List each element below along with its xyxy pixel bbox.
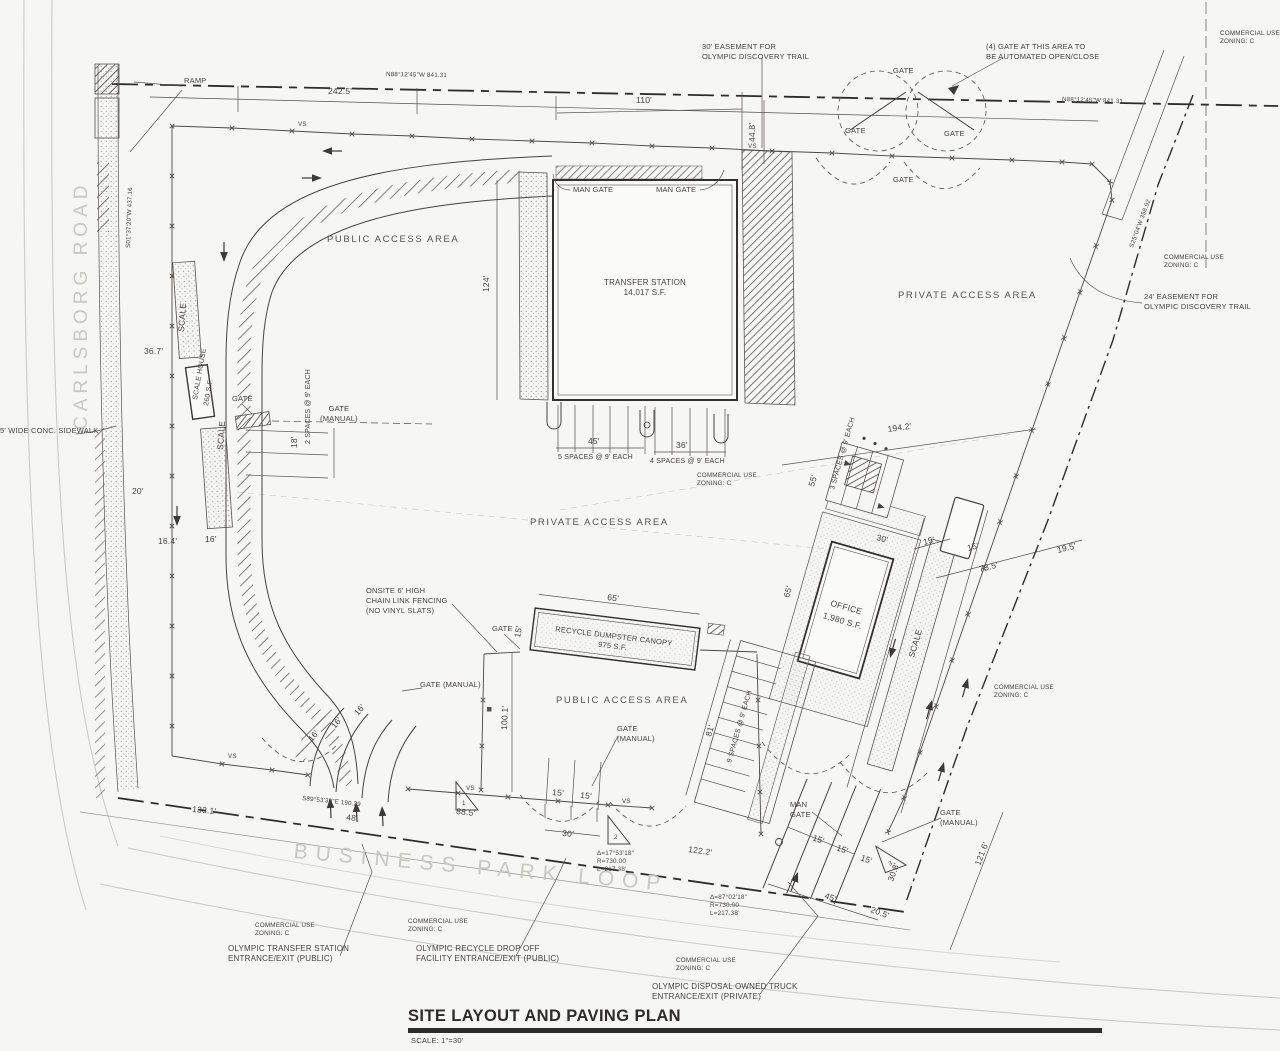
- parking-4-spaces: 4 SPACES @ 9' EACH: [650, 458, 725, 465]
- dim-122-2: 122.2': [688, 844, 713, 857]
- gap-ticks: [545, 804, 597, 822]
- note-arrow-line: [952, 58, 1003, 86]
- dim-line-45: [768, 884, 878, 920]
- property-boundary: [80, 2, 1278, 930]
- dim-20: 20': [132, 486, 144, 496]
- arrow-south: [173, 506, 181, 526]
- fence-vs-mark: VS: [622, 798, 631, 805]
- dim-36: 36': [676, 440, 688, 450]
- south-road-line: [80, 812, 910, 930]
- fence-vs-mark: VS: [298, 121, 307, 128]
- dim-73-5: 73.5': [978, 560, 999, 574]
- scale-label: SCALE: [215, 421, 227, 451]
- dim-15: 15': [835, 842, 850, 855]
- dim-44-8: 44.8': [747, 123, 757, 142]
- fence-enclosure-top-left: [484, 652, 520, 654]
- dim-133-1: 133.1': [192, 804, 217, 816]
- arrow-ne: [935, 761, 948, 782]
- arrow-east: [302, 174, 322, 182]
- dim-124: 124': [481, 275, 491, 292]
- public-entrance: [262, 708, 630, 844]
- enclosure-post: [487, 707, 492, 712]
- west-roadway: [226, 156, 552, 788]
- fence-vs-mark: VS: [466, 785, 475, 792]
- dim-15: 15': [859, 852, 874, 865]
- south-property-line: [118, 798, 905, 912]
- fence-enclosure-left: [481, 654, 484, 790]
- dim-55: 55': [806, 473, 819, 487]
- scale-label: SCALE: [176, 303, 188, 333]
- easement-right-leader: [1070, 258, 1142, 303]
- arrow-south: [220, 242, 228, 262]
- curve-number-2: 2: [614, 834, 618, 841]
- gate-swing-arc: [762, 742, 928, 793]
- fence-line-south: [408, 789, 652, 808]
- canopy-structure: [530, 608, 700, 670]
- dim-19-5: 19.5': [1056, 541, 1077, 555]
- carlsborg-sidewalk: [95, 64, 138, 798]
- trail-strip: [1102, 50, 1184, 220]
- north-dock-band: [556, 166, 702, 179]
- curve-number-1: 1: [462, 800, 466, 807]
- dim-16: 16': [205, 534, 217, 544]
- arrow-ne: [959, 677, 972, 698]
- dim-121-6: 121.6': [973, 840, 991, 866]
- fence-line-south-west: [172, 756, 308, 775]
- bearing-east: S25°04'W 358.92: [1128, 198, 1152, 249]
- fence-vs-mark: VS: [748, 143, 757, 150]
- fence-vs-mark: VS: [228, 753, 237, 760]
- dim-48: 48': [346, 812, 359, 823]
- dim-242-5: 242.5': [328, 86, 352, 96]
- dim-45: 45': [588, 436, 600, 446]
- ramp-leader: [130, 82, 182, 152]
- curve-triangle-2: [608, 816, 630, 844]
- post-dot: [873, 442, 877, 446]
- east-wall-strip: [742, 150, 795, 405]
- dim-88-5: 88.5': [456, 806, 476, 818]
- bearing-west: S01°37'20"W 437.16: [125, 187, 134, 248]
- gate-dashed-line: [272, 421, 432, 424]
- note-arrowhead: [948, 85, 959, 95]
- site-plan-drawing: OFFICE 1,980 S.F.: [0, 0, 1280, 1051]
- gate-leader: [242, 404, 520, 649]
- dim-16-4: 16.4': [158, 536, 177, 546]
- dim-15: 15': [580, 790, 593, 801]
- employee-parking-lines: [246, 430, 328, 478]
- fencing-leader: [452, 604, 497, 652]
- truck-entrance: 3: [762, 742, 1003, 950]
- dim-81: 81': [703, 723, 716, 737]
- canopy-hatch-block: [707, 623, 724, 635]
- dim-65: 65': [607, 592, 620, 603]
- carlsborg-road-edge: [24, 0, 86, 910]
- east-property-line: [905, 95, 1193, 905]
- sight-line: [237, 434, 1012, 549]
- business-park-loop-edge: [128, 848, 1280, 998]
- dim-line-121-6: [950, 812, 1003, 950]
- dim-16: 16': [352, 702, 367, 718]
- dock-space-lines: [558, 405, 725, 457]
- dim-65: 65': [781, 584, 794, 598]
- dim-100-1: 100.1': [499, 705, 510, 730]
- dim-15: 15': [811, 832, 826, 845]
- dim-15: 15': [512, 625, 524, 638]
- transfer-station-building: [553, 180, 737, 400]
- dock-dim-lines: [556, 448, 726, 452]
- recycle-canopy: [530, 594, 725, 673]
- fence-line-top: [172, 126, 1092, 164]
- median-hatch: [244, 176, 520, 786]
- ramp-hatch: [95, 64, 119, 94]
- automated-gates: [816, 58, 1003, 189]
- dim-30: 30': [562, 828, 575, 839]
- dim-110: 110': [636, 95, 652, 105]
- west-wall-strip: [519, 172, 548, 400]
- dock-bollard: [547, 402, 728, 443]
- entrance-leader: [340, 844, 818, 994]
- fence-enclosure-top-right: [700, 650, 757, 652]
- arrow-west: [322, 147, 342, 155]
- parking-2-spaces: 2 SPACES @ 9' EACH: [305, 369, 312, 444]
- dim-line-194-2: [782, 429, 1036, 465]
- dim-36-7: 36.7': [144, 346, 163, 356]
- arrow-ne: [923, 699, 936, 720]
- business-park-loop-edge: [160, 836, 1060, 962]
- gate-swing-arc: [816, 158, 980, 189]
- site-plan-sheet: OFFICE 1,980 S.F.: [0, 0, 1280, 1051]
- dim-18: 18': [289, 436, 299, 448]
- post-dot: [862, 436, 866, 440]
- dim-15: 15': [966, 540, 980, 553]
- bearing-north: N88°12'45"W 841.31: [1062, 96, 1124, 105]
- bearing-north: N88°12'45"W 841.31: [386, 71, 448, 79]
- dim-194-2: 194.2': [887, 421, 912, 434]
- arrow-north: [378, 806, 387, 826]
- dim-15: 15': [552, 787, 565, 798]
- parking-5-spaces: 5 SPACES @ 9' EACH: [558, 454, 633, 461]
- business-park-loop-edge: [100, 884, 1280, 1030]
- fence-line-east: [888, 164, 1112, 832]
